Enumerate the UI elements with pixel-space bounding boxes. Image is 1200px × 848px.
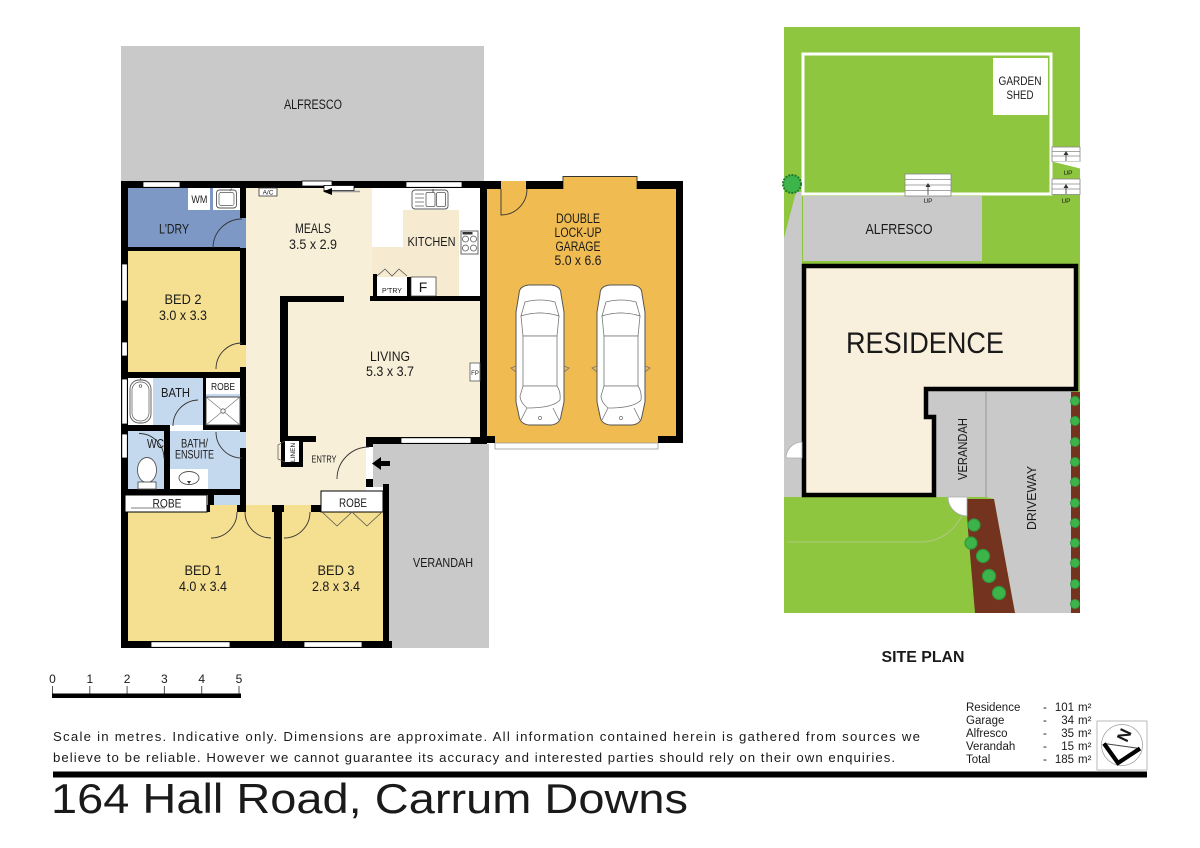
svg-text:-: -	[1043, 741, 1047, 753]
svg-text:5.0 x 6.6: 5.0 x 6.6	[555, 253, 602, 268]
svg-text:-: -	[1043, 702, 1047, 714]
svg-text:VERANDAH: VERANDAH	[413, 555, 473, 570]
svg-text:-: -	[1043, 754, 1047, 766]
svg-text:LIVING: LIVING	[370, 348, 410, 364]
svg-text:m²: m²	[1078, 754, 1092, 766]
svg-text:101: 101	[1055, 702, 1074, 714]
svg-text:15: 15	[1061, 741, 1074, 753]
svg-text:DOUBLE: DOUBLE	[556, 211, 600, 226]
svg-text:Verandah: Verandah	[966, 741, 1015, 753]
svg-text:F: F	[419, 279, 428, 295]
svg-text:2: 2	[124, 672, 131, 686]
svg-text:4.0 x 3.4: 4.0 x 3.4	[179, 578, 227, 594]
svg-text:WM: WM	[191, 194, 207, 206]
svg-text:m²: m²	[1078, 702, 1092, 714]
svg-text:-: -	[1043, 728, 1047, 740]
svg-text:164 Hall Road, Carrum Downs: 164 Hall Road, Carrum Downs	[51, 775, 688, 822]
svg-text:VERANDAH: VERANDAH	[956, 418, 970, 480]
svg-text:UP: UP	[1061, 198, 1070, 205]
svg-text:ROBE: ROBE	[153, 499, 182, 511]
svg-text:ENSUITE: ENSUITE	[175, 450, 214, 462]
svg-text:3: 3	[161, 672, 168, 686]
svg-text:Residence: Residence	[966, 702, 1020, 714]
svg-text:5: 5	[236, 672, 243, 686]
svg-text:KITCHEN: KITCHEN	[408, 234, 456, 249]
svg-text:3.5 x 2.9: 3.5 x 2.9	[289, 236, 337, 252]
svg-text:0: 0	[49, 672, 56, 686]
svg-text:WC: WC	[147, 436, 164, 451]
svg-text:A/C: A/C	[263, 190, 274, 197]
svg-text:BED 2: BED 2	[165, 291, 202, 307]
svg-text:DRIVEWAY: DRIVEWAY	[1025, 465, 1039, 530]
svg-text:Total: Total	[966, 754, 990, 766]
svg-text:LOCK-UP: LOCK-UP	[555, 225, 602, 240]
svg-text:ROBE: ROBE	[211, 381, 235, 393]
svg-text:3.0 x 3.3: 3.0 x 3.3	[159, 307, 207, 323]
svg-text:RESIDENCE: RESIDENCE	[846, 327, 1004, 360]
svg-text:P'TRY: P'TRY	[382, 288, 402, 295]
svg-text:m²: m²	[1078, 741, 1092, 753]
svg-text:MEALS: MEALS	[295, 220, 331, 236]
svg-text:34: 34	[1061, 715, 1074, 727]
svg-text:SHED: SHED	[1007, 88, 1034, 102]
svg-text:SITE PLAN: SITE PLAN	[882, 649, 965, 666]
svg-text:ROBE: ROBE	[339, 498, 367, 510]
svg-text:UP: UP	[1063, 170, 1072, 177]
svg-text:m²: m²	[1078, 715, 1092, 727]
svg-text:ALFRESCO: ALFRESCO	[284, 97, 342, 112]
svg-text:-: -	[1043, 715, 1047, 727]
svg-text:1: 1	[86, 672, 93, 686]
svg-text:Scale in metres. Indicative on: Scale in metres. Indicative only. Dimens…	[53, 729, 920, 744]
svg-text:2.8 x 3.4: 2.8 x 3.4	[312, 578, 360, 594]
svg-text:ENTRY: ENTRY	[312, 454, 337, 466]
svg-text:BED 3: BED 3	[318, 562, 355, 578]
svg-text:4: 4	[198, 672, 205, 686]
svg-text:L'DRY: L'DRY	[159, 222, 189, 237]
svg-text:Garage: Garage	[966, 715, 1004, 727]
svg-text:BATH: BATH	[161, 385, 190, 400]
svg-text:185: 185	[1055, 754, 1074, 766]
svg-text:5.3 x 3.7: 5.3 x 3.7	[366, 363, 414, 379]
svg-text:GARDEN: GARDEN	[999, 74, 1042, 88]
svg-text:believe to be reliable. Howeve: believe to be reliable. However we canno…	[53, 750, 895, 765]
svg-text:FP: FP	[471, 371, 479, 377]
svg-text:UP: UP	[923, 198, 932, 205]
svg-text:BED 1: BED 1	[185, 562, 222, 578]
svg-text:35: 35	[1061, 728, 1074, 740]
svg-text:LINEN: LINEN	[290, 443, 297, 462]
svg-text:m²: m²	[1078, 728, 1092, 740]
svg-text:Alfresco: Alfresco	[966, 728, 1008, 740]
svg-text:ALFRESCO: ALFRESCO	[866, 221, 933, 238]
svg-text:GARAGE: GARAGE	[556, 239, 601, 254]
